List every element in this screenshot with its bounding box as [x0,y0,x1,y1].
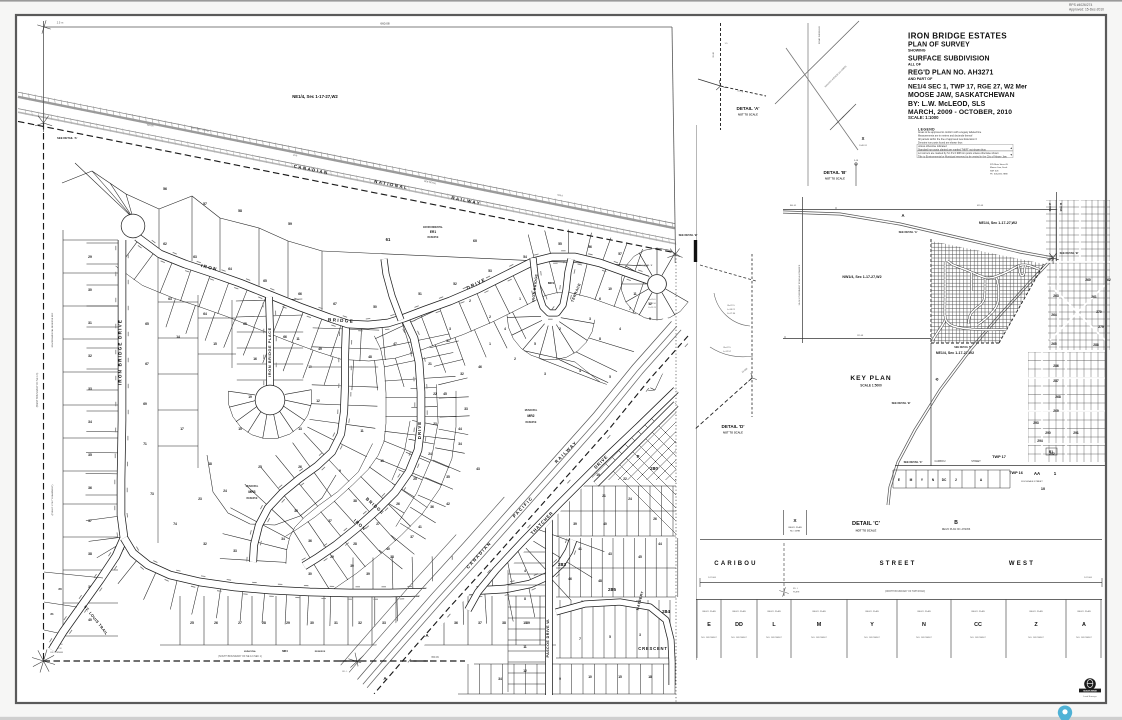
svg-text:2: 2 [514,357,516,361]
svg-text:67: 67 [145,362,149,366]
svg-text:MR2: MR2 [527,414,534,418]
svg-text:25: 25 [413,477,417,481]
svg-text:4: 4 [504,327,506,331]
svg-text:IRON BRIDGE PLACE: IRON BRIDGE PLACE [268,327,272,376]
svg-text:NO. 101234567: NO. 101234567 [811,637,827,639]
svg-text:MUNICIPAL: MUNICIPAL [525,409,538,412]
svg-text:NE1/4, Sec 1-17-27,W2: NE1/4, Sec 1-17-27,W2 [979,221,1017,225]
svg-text:35: 35 [88,453,92,457]
svg-text:13: 13 [298,427,302,431]
svg-text:OF CORNER: OF CORNER [50,652,64,654]
svg-text:30: 30 [310,621,314,625]
svg-text:M: M [817,622,822,628]
svg-text:40: 40 [386,547,390,551]
svg-text:MUNICIPAL: MUNICIPAL [244,650,257,653]
svg-text:4: 4 [579,369,581,373]
svg-text:REG'D PLAN: REG'D PLAN [917,610,930,613]
svg-text:46: 46 [478,365,482,369]
svg-text:24: 24 [428,452,432,456]
svg-text:IRON BRIDGE ESTATES: IRON BRIDGE ESTATES [908,32,1007,41]
svg-text:DC: DC [942,478,947,482]
svg-text:28: 28 [262,621,266,625]
svg-text:660.08: 660.08 [380,22,390,26]
svg-text:(SOUTH BOUNDARY OF NE 1/4 SEC: (SOUTH BOUNDARY OF NE 1/4 SEC 1) [218,655,262,658]
svg-text:261: 261 [1091,295,1097,299]
svg-text:NO. 101234567: NO. 101234567 [701,637,717,639]
svg-text:N: N [922,622,926,628]
svg-text:47: 47 [393,342,397,346]
svg-text:26: 26 [298,465,302,469]
svg-text:DD: DD [735,622,743,628]
svg-text:REG'D PLAN NO. AH3271: REG'D PLAN NO. AH3271 [908,69,993,76]
svg-text:11: 11 [523,645,527,649]
svg-text:Ph: 306-692-7888: Ph: 306-692-7888 [990,174,1008,176]
svg-text:46: 46 [568,577,572,581]
svg-text:P: P [637,454,640,459]
svg-text:L=18.21: L=18.21 [727,309,736,311]
svg-text:4: 4 [619,327,621,331]
svg-text:(NORTH BOUNDARY OF TWP ROAD): (NORTH BOUNDARY OF TWP ROAD) [885,590,925,593]
svg-text:(WEST BOUNDARY OF NE 1/4): (WEST BOUNDARY OF NE 1/4) [36,373,39,408]
svg-text:284: 284 [662,609,670,615]
svg-text:RESERVE: RESERVE [315,651,326,653]
svg-text:NO. 101234567: NO. 101234567 [731,637,747,639]
svg-text:DRIVE: DRIVE [417,421,422,439]
svg-text:48: 48 [368,355,372,359]
svg-text:58: 58 [238,209,242,213]
svg-text:NE1/4 SEC 1, TWP 17, RGE 27, W: NE1/4 SEC 1, TWP 17, RGE 27, W2 Mer [908,84,1028,91]
svg-text:43: 43 [608,552,612,556]
svg-text:10: 10 [608,287,612,291]
svg-text:RESERVE: RESERVE [526,422,537,424]
svg-text:Moose Jaw, Sask.: Moose Jaw, Sask. [990,167,1008,169]
svg-text:10: 10 [308,365,312,369]
svg-text:ENVIRONMENTAL RESERVE ER2: ENVIRONMENTAL RESERVE ER2 [51,312,54,347]
svg-text:REG'D PLAN: REG'D PLAN [865,610,878,613]
svg-text:DETAIL 'A': DETAIL 'A' [737,106,760,111]
svg-text:36: 36 [454,621,458,625]
svg-text:67: 67 [333,302,337,306]
svg-text:294: 294 [1037,439,1043,443]
svg-text:15: 15 [213,342,217,346]
svg-text:SHOWING: SHOWING [908,49,926,53]
svg-text:3: 3 [449,327,451,331]
svg-text:21: 21 [428,362,432,366]
svg-text:147.000: 147.000 [1084,577,1093,579]
svg-text:FD. I.: FD. I. [342,671,348,673]
svg-text:2: 2 [955,478,957,482]
svg-text:DETAIL 'B': DETAIL 'B' [824,170,847,175]
svg-text:BY: L.W. McLEOD, SLS: BY: L.W. McLEOD, SLS [908,101,986,108]
svg-text:CARIBOU: CARIBOU [935,460,946,463]
svg-text:5: 5 [609,375,611,379]
svg-text:ER1: ER1 [430,230,436,234]
svg-text:45: 45 [443,392,447,396]
svg-text:C=17.94: C=17.94 [727,313,736,315]
svg-text:65: 65 [145,322,149,326]
svg-text:61: 61 [386,237,391,242]
svg-text:E: E [898,478,900,482]
svg-text:71: 71 [143,442,147,446]
svg-text:279: 279 [1098,325,1104,329]
svg-text:69: 69 [143,402,147,406]
svg-text:265: 265 [1051,342,1057,346]
svg-text:49: 49 [318,347,322,351]
svg-text:30.48 GOVERNMENT ROAD ALLOWANC: 30.48 GOVERNMENT ROAD ALLOWANCE [798,264,801,305]
svg-text:Land Surveys: Land Surveys [1083,695,1097,698]
svg-text:1: 1 [489,342,491,346]
svg-text:41: 41 [578,547,582,551]
svg-text:12: 12 [648,302,652,306]
svg-text:NO. 101234567: NO. 101234567 [1076,637,1092,639]
svg-text:38: 38 [353,499,357,503]
svg-text:◄: ◄ [1010,154,1013,157]
svg-text:64: 64 [228,267,232,271]
svg-text:CC: CC [974,622,982,628]
svg-text:3: 3 [544,372,546,376]
svg-text:22: 22 [623,477,627,481]
svg-text:REG'D PLAN: REG'D PLAN [732,610,745,613]
svg-text:32: 32 [460,372,464,376]
svg-text:STREET: STREET [971,460,981,463]
svg-text:SURFACE SUBDIVISION: SURFACE SUBDIVISION [908,55,990,62]
svg-text:36: 36 [308,539,312,543]
svg-text:28: 28 [353,542,357,546]
svg-text:PLAN OF SURVEY: PLAN OF SURVEY [908,41,970,48]
svg-text:25: 25 [258,465,262,469]
svg-text:48: 48 [598,579,602,583]
svg-text:10: 10 [588,675,592,679]
svg-text:55: 55 [558,242,562,246]
svg-text:SEE DETAIL 'C': SEE DETAIL 'C' [904,460,923,464]
svg-text:ENVIRONMENTAL: ENVIRONMENTAL [423,226,443,229]
svg-text:M: M [910,478,913,482]
svg-text:A: A [1082,622,1086,628]
svg-text:REG'D PLAN: REG'D PLAN [788,526,801,529]
svg-text:NO. 101234567: NO. 101234567 [1028,637,1044,639]
svg-text:63: 63 [193,255,197,259]
svg-text:CRESCENT: CRESCENT [638,646,667,651]
svg-text:44: 44 [658,542,662,546]
svg-text:38: 38 [390,555,394,559]
svg-text:37: 37 [328,519,332,523]
svg-text:269: 269 [1053,409,1059,413]
svg-text:NOT TO SCALE: NOT TO SCALE [856,529,877,533]
svg-text:NO. 101234567: NO. 101234567 [916,637,932,639]
svg-text:53: 53 [488,269,492,273]
svg-text:45: 45 [638,555,642,559]
svg-text:73: 73 [150,492,154,496]
svg-text:MUNICIPAL: MUNICIPAL [246,485,259,488]
svg-text:R1: R1 [1049,450,1053,454]
svg-text:38: 38 [88,552,92,556]
svg-text:27: 27 [238,621,242,625]
svg-text:×: × [784,335,786,339]
svg-text:9: 9 [339,469,341,473]
svg-text:15: 15 [238,427,242,431]
svg-text:42: 42 [446,502,450,506]
svg-text:Y: Y [870,622,874,628]
svg-text:26: 26 [653,517,657,521]
svg-text:41: 41 [418,525,422,529]
svg-text:REG'D PLAN NO. AH2456: REG'D PLAN NO. AH2456 [942,528,971,531]
svg-text:29: 29 [286,621,290,625]
svg-text:65: 65 [263,279,267,283]
svg-text:31: 31 [334,621,338,625]
svg-text:SEE DETAIL 'B': SEE DETAIL 'B' [1060,251,1079,255]
svg-text:33: 33 [233,549,237,553]
svg-text:39: 39 [350,564,354,568]
svg-text:23: 23 [198,497,202,501]
svg-text:SEE DETAIL 'B': SEE DETAIL 'B' [892,401,911,405]
svg-text:3: 3 [639,633,641,637]
svg-text:155.08: 155.08 [857,335,864,337]
svg-text:NO. 101234567: NO. 101234567 [864,637,880,639]
svg-text:32: 32 [358,621,362,625]
svg-text:REG'D PLAN: REG'D PLAN [1029,610,1042,613]
svg-text:Approved: 15-Dec-2010: Approved: 15-Dec-2010 [1069,8,1104,12]
svg-text:10: 10 [1041,487,1045,491]
svg-text:24: 24 [628,497,632,501]
svg-text:REG'D PLAN: REG'D PLAN [767,610,780,613]
svg-text:9: 9 [559,677,561,681]
svg-text:27: 27 [376,522,380,526]
svg-text:24: 24 [223,489,227,493]
svg-text:PLATE: PLATE [793,591,800,594]
svg-text:29: 29 [330,555,334,559]
svg-text:260: 260 [1085,278,1091,282]
svg-text:62: 62 [163,242,167,246]
svg-text:26: 26 [214,621,218,625]
svg-text:5: 5 [609,635,611,639]
svg-text:19: 19 [596,473,600,477]
svg-text:29: 29 [88,255,92,259]
svg-text:35: 35 [446,475,450,479]
svg-text:60: 60 [473,239,477,243]
svg-text:34: 34 [88,420,92,424]
svg-text:33: 33 [88,387,92,391]
svg-text:WEST: WEST [1009,561,1035,567]
svg-text:SEE DETAIL 'B': SEE DETAIL 'B' [637,264,653,267]
svg-text:11: 11 [360,429,364,433]
svg-text:RGE 26: RGE 26 [1060,202,1063,211]
svg-text:ALL OF: ALL OF [908,63,922,67]
svg-text:16: 16 [253,357,257,361]
svg-text:280: 280 [650,466,658,472]
svg-text:36: 36 [430,505,434,509]
svg-text:11: 11 [633,292,637,296]
svg-text:12: 12 [523,669,527,673]
svg-text:33: 33 [382,621,386,625]
svg-text:32: 32 [88,354,92,358]
svg-text:(PUBLIC UTILITY EASEMENT): (PUBLIC UTILITY EASEMENT) [51,484,54,515]
svg-text:FD. I.: FD. I. [793,588,799,590]
svg-text:659.09: 659.09 [431,656,439,659]
svg-text:2: 2 [469,299,471,303]
svg-text:◄: ◄ [1010,147,1013,150]
svg-text:844.05: 844.05 [790,205,797,207]
svg-text:63: 63 [168,297,172,301]
svg-text:287: 287 [1053,379,1059,383]
svg-text:19: 19 [248,395,252,399]
svg-text:14: 14 [176,335,180,339]
svg-text:22: 22 [433,392,437,396]
svg-text:50: 50 [373,305,377,309]
svg-text:RESERVE: RESERVE [428,237,439,239]
svg-text:S6H 3J8: S6H 3J8 [990,170,999,172]
svg-text:3: 3 [589,317,591,321]
svg-text:268: 268 [1055,395,1061,399]
svg-text:21: 21 [602,494,606,498]
svg-text:PASCOE DRIVE W.: PASCOE DRIVE W. [546,619,550,658]
svg-text:1: 1 [519,297,521,301]
svg-text:270: 270 [1096,310,1102,314]
svg-text:STREET: STREET [880,561,917,567]
svg-text:263: 263 [1053,294,1059,298]
svg-text:TWP 17: TWP 17 [992,455,1006,459]
svg-text:283: 283 [558,562,566,568]
svg-text:56: 56 [588,245,592,249]
svg-text:7: 7 [629,307,631,311]
svg-text:MOOSE JAW, SASKATCHEWAN: MOOSE JAW, SASKATCHEWAN [908,92,1015,99]
svg-text:20: 20 [58,587,62,591]
svg-text:52: 52 [453,282,457,286]
svg-text:2: 2 [489,315,491,319]
svg-text:X: X [862,136,865,141]
svg-text:26: 26 [396,502,400,506]
svg-text:2.5 m: 2.5 m [57,21,64,25]
svg-text:25: 25 [190,621,194,625]
svg-text:AA: AA [1034,471,1041,476]
svg-text:SCALE: 1:1000: SCALE: 1:1000 [908,115,939,120]
svg-text:40: 40 [603,522,607,526]
svg-text:SEE DETAIL 'B': SEE DETAIL 'B' [679,233,698,237]
svg-text:291: 291 [1073,431,1079,435]
svg-text:32: 32 [203,542,207,546]
svg-text:264: 264 [1051,313,1057,317]
svg-text:17: 17 [180,427,184,431]
svg-text:RESERVE: RESERVE [247,498,258,500]
svg-text:5: 5 [534,342,536,346]
svg-text:66: 66 [283,335,287,339]
svg-text:R=15.0: R=15.0 [649,299,657,301]
svg-text:288: 288 [1093,343,1099,347]
svg-text:57: 57 [203,202,207,206]
svg-text:ROAD WIDENING: ROAD WIDENING [818,26,821,44]
svg-text:NE1/4, Sec 1-17-27,W2: NE1/4, Sec 1-17-27,W2 [292,94,338,99]
svg-text:MR4: MR4 [282,649,288,653]
svg-text:IRON BRIDGE DRIVE: IRON BRIDGE DRIVE [118,319,123,385]
svg-text:10: 10 [523,621,527,625]
svg-text:RGE 27: RGE 27 [1049,202,1052,211]
svg-text:MR1: MR1 [548,281,555,285]
svg-text:31: 31 [88,321,92,325]
svg-text:R=47.5: R=47.5 [723,347,731,349]
svg-text:66: 66 [298,292,302,296]
svg-text:38: 38 [502,621,506,625]
svg-text:REG'D PLAN: REG'D PLAN [971,610,984,613]
svg-text:37: 37 [410,535,414,539]
svg-text:21: 21 [50,612,54,616]
svg-text:E: E [707,622,711,628]
svg-text:15: 15 [618,675,622,679]
svg-text:23: 23 [433,422,437,426]
svg-text:DETAIL 'D': DETAIL 'D' [722,424,745,429]
svg-text:64: 64 [203,312,207,316]
svg-text:8: 8 [599,337,601,341]
svg-text:AND PART OF: AND PART OF [908,77,933,81]
svg-text:L=12.57: L=12.57 [723,351,732,353]
svg-text:57: 57 [618,252,622,256]
svg-text:33: 33 [464,407,468,411]
svg-text:REG'D PLAN: REG'D PLAN [702,610,715,613]
svg-text:2: 2 [559,327,561,331]
svg-text:SEE DETAIL 'D': SEE DETAIL 'D' [954,346,972,349]
svg-text:NO. 34HB: NO. 34HB [790,531,801,533]
svg-text:31: 31 [446,339,450,343]
svg-text:4: 4 [524,569,526,573]
svg-text:7: 7 [579,637,581,641]
svg-text:5: 5 [649,317,651,321]
svg-text:30: 30 [88,288,92,292]
svg-text:659.08: 659.08 [977,205,984,207]
svg-text:REG'D PLAN: REG'D PLAN [1077,610,1090,613]
svg-text:Title to Environmental or Muni: Title to Environmental or Municipal rese… [918,156,1007,159]
svg-text:34: 34 [458,442,462,446]
svg-text:34: 34 [498,677,502,681]
svg-text:74: 74 [173,522,177,526]
svg-text:30.48: 30.48 [713,51,715,57]
svg-text:8: 8 [524,597,526,601]
svg-text:34: 34 [281,537,285,541]
svg-text:TWP 16: TWP 16 [1009,471,1023,475]
svg-text:54: 54 [523,255,527,259]
svg-text:43: 43 [476,467,480,471]
svg-text:RPS #4026/274: RPS #4026/274 [1069,3,1092,7]
svg-text:290: 290 [1045,431,1051,435]
svg-text:KEY PLAN: KEY PLAN [850,375,891,382]
svg-text:MR3: MR3 [248,490,255,494]
svg-text:11: 11 [296,337,300,341]
svg-text:NW1/4, Sec 1-17-27,W2: NW1/4, Sec 1-17-27,W2 [842,275,881,279]
svg-text:293: 293 [1033,421,1039,425]
svg-text:51: 51 [418,292,422,296]
svg-text:CARIBOU: CARIBOU [714,561,757,567]
svg-text:36: 36 [88,486,92,490]
svg-text:40: 40 [88,618,92,622]
svg-text:NOT TO SCALE: NOT TO SCALE [738,113,758,117]
svg-text:SEE DETAIL 'A': SEE DETAIL 'A' [899,230,918,234]
svg-text:NO. 101234567: NO. 101234567 [970,637,986,639]
svg-text:37: 37 [478,621,482,625]
svg-text:ROCHDALE STREET: ROCHDALE STREET [1021,480,1043,483]
svg-text:285: 285 [608,587,616,593]
svg-text:147.000: 147.000 [708,577,717,579]
svg-text:12: 12 [316,399,320,403]
svg-text:18: 18 [648,675,652,679]
svg-text:56: 56 [163,187,167,191]
svg-text:SCALE 1:5000: SCALE 1:5000 [860,384,882,388]
svg-text:6: 6 [599,297,601,301]
svg-text:30: 30 [308,572,312,576]
svg-text:325 Main Street N.: 325 Main Street N. [990,163,1009,166]
svg-text:18: 18 [208,462,212,466]
svg-text:A: A [901,213,904,218]
svg-text:286: 286 [1053,364,1059,368]
svg-text:35: 35 [294,509,298,513]
svg-text:NO. 101234567: NO. 101234567 [766,637,782,639]
svg-text:10: 10 [380,459,384,463]
